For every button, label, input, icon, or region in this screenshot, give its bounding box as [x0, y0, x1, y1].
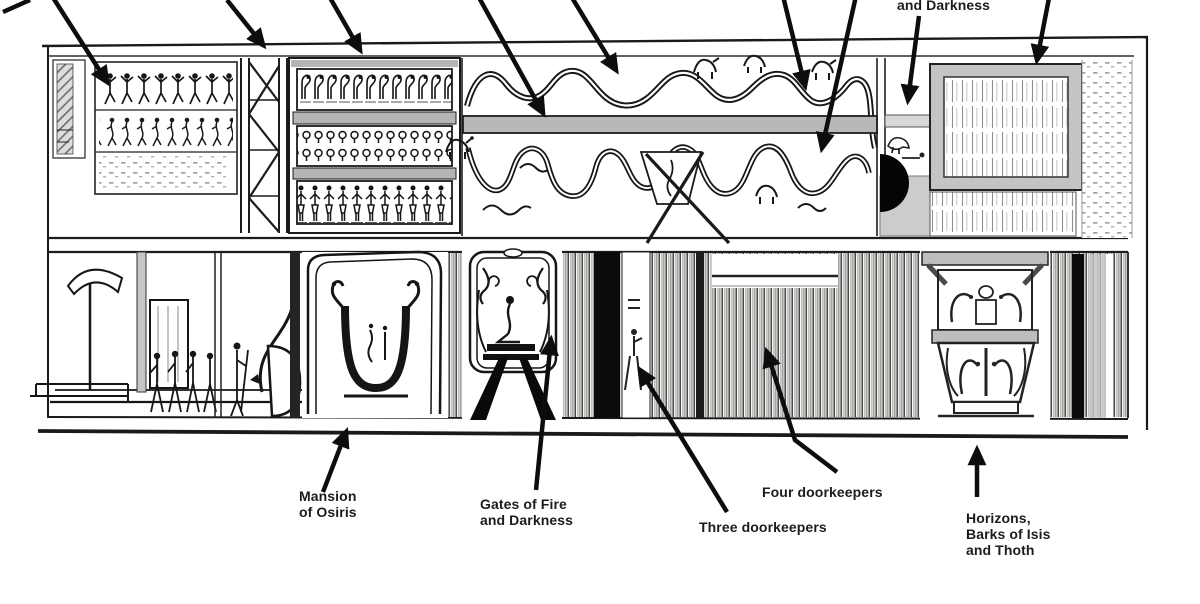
white-gap — [1106, 254, 1113, 418]
label-mansion-of-osiris: Mansion of Osiris — [299, 489, 357, 521]
mansion-of-osiris-shrine — [302, 252, 448, 418]
register-divider — [48, 238, 1128, 252]
top-register — [48, 56, 1134, 243]
inscription-panel — [930, 60, 1132, 238]
dancers-panel — [95, 62, 237, 194]
dark-doorway — [594, 252, 620, 418]
dark-band — [1072, 254, 1084, 418]
ladder — [241, 58, 287, 233]
horizons-shrine — [920, 250, 1050, 420]
scanned-diagram-page: and Darkness Mansion of Osiris Gates of … — [0, 0, 1200, 604]
deity-rows-panel — [289, 58, 460, 233]
margin-strip — [53, 60, 85, 158]
label-horizons-barks: Horizons, Barks of Isis and Thoth — [966, 511, 1051, 558]
crossing-paths — [641, 152, 729, 243]
gray-band — [1090, 254, 1106, 418]
procession-figures — [150, 343, 260, 417]
annotation-arrow — [571, 0, 616, 70]
annotation-arrow — [227, 0, 263, 45]
two-ways-panel — [446, 56, 930, 243]
wall-divider — [137, 252, 146, 392]
label-and-darkness-partial: and Darkness — [897, 0, 990, 14]
junction-chamber — [880, 138, 930, 236]
label-gates-of-fire: Gates of Fire and Darkness — [480, 497, 573, 529]
dark-post — [696, 252, 704, 418]
middle-path-bar — [463, 115, 930, 133]
doorkeeper-niche — [622, 252, 650, 418]
dark-jamb — [290, 252, 300, 418]
label-four-doorkeepers: Four doorkeepers — [762, 485, 883, 501]
bottom-register — [30, 249, 1128, 420]
annotation-arrow — [323, 432, 346, 492]
annotation-arrow — [908, 16, 919, 100]
door-lintel — [712, 254, 838, 288]
annotation-arrow — [1037, 0, 1049, 60]
label-three-doorkeepers: Three doorkeepers — [699, 520, 827, 536]
annotation-arrow — [3, 0, 30, 12]
